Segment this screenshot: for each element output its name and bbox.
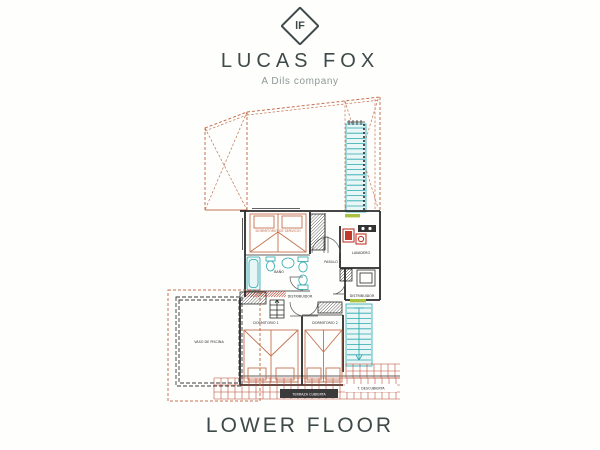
- label-bedroom-1: DORMITORIO 1: [253, 321, 279, 325]
- floor-plan-drawing: DORMITORIO DE SERVICIO LAVADERO BAÑO: [0, 0, 600, 450]
- label-distributor-right: DISTRIBUIDOR: [350, 294, 375, 298]
- bedroom-1: DORMITORIO 1: [244, 321, 298, 382]
- label-distributor-center: DISTRIBUIDOR: [288, 295, 313, 299]
- label-pool: VASO DE PISCINA: [194, 340, 224, 344]
- label-laundry: LAVADERO: [352, 251, 371, 255]
- bedroom-2: DORMITORIO 2: [305, 302, 342, 382]
- label-uncovered-terrace: T. DESCUBIERTA: [356, 387, 385, 391]
- terrace-labels: TERRAZA CUBIERTA T. DESCUBIERTA: [280, 384, 397, 398]
- laundry-room: LAVADERO: [343, 225, 376, 255]
- plan-caption: LOWER FLOOR: [0, 414, 600, 438]
- level-mark-lower: [350, 299, 366, 302]
- label-bathroom: BAÑO: [274, 269, 284, 274]
- lower-staircase: [346, 299, 372, 366]
- label-service-bedroom: DORMITORIO DE SERVICIO: [255, 229, 300, 233]
- label-hallway: PASILLO: [324, 260, 338, 264]
- level-mark-upper: [345, 214, 360, 217]
- label-bedroom-2: DORMITORIO 2: [312, 321, 338, 325]
- upper-staircase: [345, 120, 366, 217]
- label-covered-terrace: TERRAZA CUBIERTA: [291, 393, 326, 397]
- floor-plan-page: lF LUCAS FOX A Dils company: [0, 0, 600, 450]
- door-arcs: [290, 237, 345, 316]
